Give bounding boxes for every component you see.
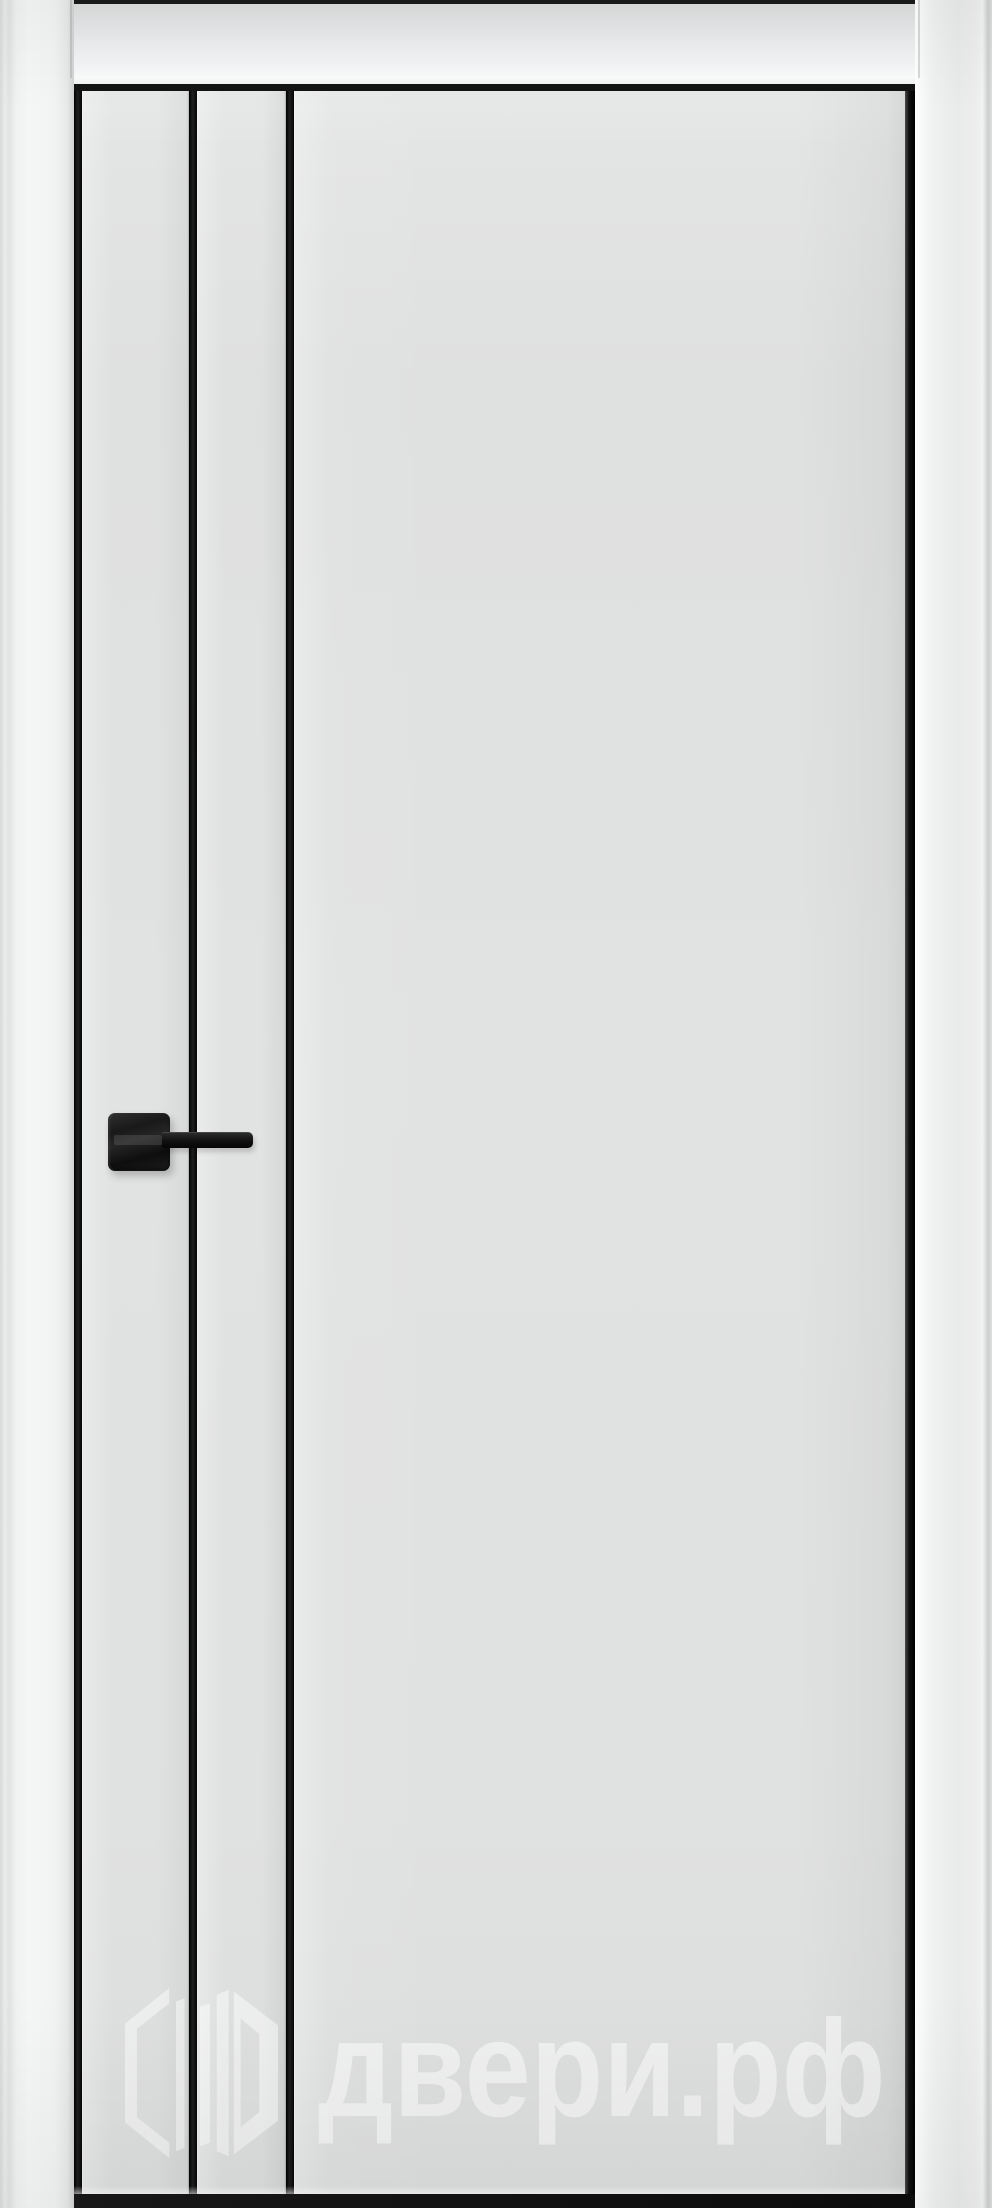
door-gap-line-top [74,84,915,91]
bottom-shadow-strip [0,2194,918,2208]
frame-left-casing [0,0,74,2208]
frame-joint-right [918,0,920,78]
frame-joint-left [70,0,72,78]
dveri-rf-logo-icon [125,1988,278,2158]
watermark-text: двери.рф [318,2000,886,2138]
molding-line-1 [74,84,82,2196]
handle-lever [162,1132,253,1148]
frame-head-casing [72,4,920,76]
door-leaf-panel [294,84,905,2196]
frame-head-bevel-highlight [72,76,915,84]
door-gap-line-right [905,84,915,2196]
top-shadow-strip [72,0,920,4]
frame-right-casing [915,0,992,2208]
door-bottom-bevel [74,2186,905,2194]
handle-rosette [108,1113,170,1171]
door-product-photo: двери.рф [0,0,992,2208]
molding-line-3 [286,84,294,2196]
